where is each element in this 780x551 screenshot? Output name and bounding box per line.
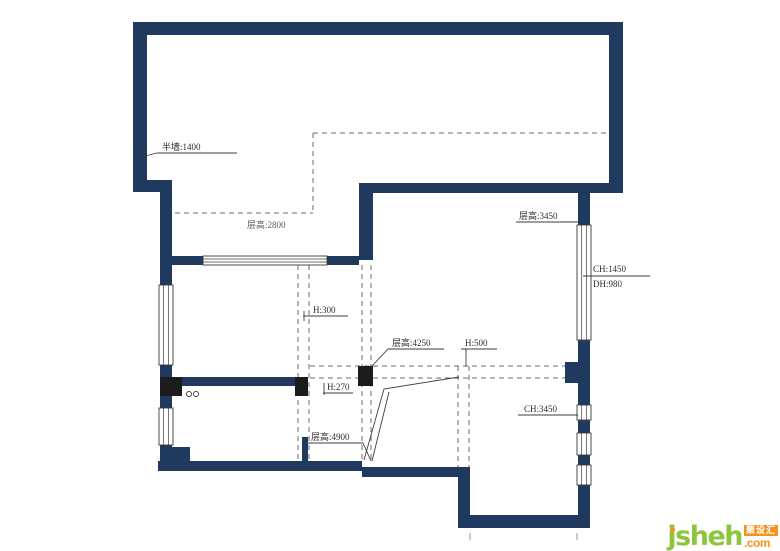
dimension-label: CH:3450 <box>524 404 558 414</box>
window <box>577 405 591 420</box>
wall-segment <box>133 22 623 35</box>
floor-plan-page: 半墙:1400层高:2800层高:3450CH:1450DH:980H:300层… <box>0 0 780 551</box>
wall-segment <box>609 22 623 193</box>
window <box>159 285 173 365</box>
fixture-circle <box>187 392 192 397</box>
dimension-label: 层高:4900 <box>311 431 350 442</box>
wall-segment <box>359 183 373 260</box>
slope-leader-line <box>364 377 459 460</box>
logo-tld-text: .com <box>744 537 770 549</box>
column <box>295 377 308 396</box>
wall-segment <box>158 461 362 471</box>
fixture-circle <box>194 392 199 397</box>
wall-segment <box>170 447 190 462</box>
wall-segment <box>362 467 470 477</box>
dimension-label: 层高:2800 <box>247 219 286 230</box>
logo-right-column: 聚设汇 .com <box>744 525 778 549</box>
window <box>159 408 173 445</box>
window <box>577 465 591 485</box>
column <box>358 366 373 386</box>
window <box>203 256 327 265</box>
dimension-label: 半墙:1400 <box>162 141 201 152</box>
wall-segment <box>172 377 298 386</box>
floor-plan-drawing: 半墙:1400层高:2800层高:3450CH:1450DH:980H:300层… <box>0 0 780 551</box>
column <box>160 377 182 396</box>
dimension-label: H:270 <box>327 382 350 392</box>
dimension-label: H:500 <box>465 338 488 348</box>
wall-segment <box>302 437 308 462</box>
logo-brand-text: jsheh <box>667 526 742 549</box>
dimension-label: 层高:4250 <box>392 337 431 348</box>
window <box>577 225 591 340</box>
wall-segment <box>458 515 590 528</box>
dimension-label: DH:980 <box>593 279 622 289</box>
wall-segment <box>133 22 147 192</box>
wall-segment <box>359 183 623 193</box>
label-leader-line <box>371 349 388 367</box>
dimension-label: 层高:3450 <box>519 210 558 221</box>
window <box>577 433 591 455</box>
logo-cn-text: 聚设汇 <box>744 525 778 536</box>
dimension-label: CH:1450 <box>593 264 627 274</box>
site-logo: jsheh 聚设汇 .com <box>667 525 778 549</box>
wall-segment <box>565 362 578 383</box>
dimension-label: H:300 <box>313 305 336 315</box>
